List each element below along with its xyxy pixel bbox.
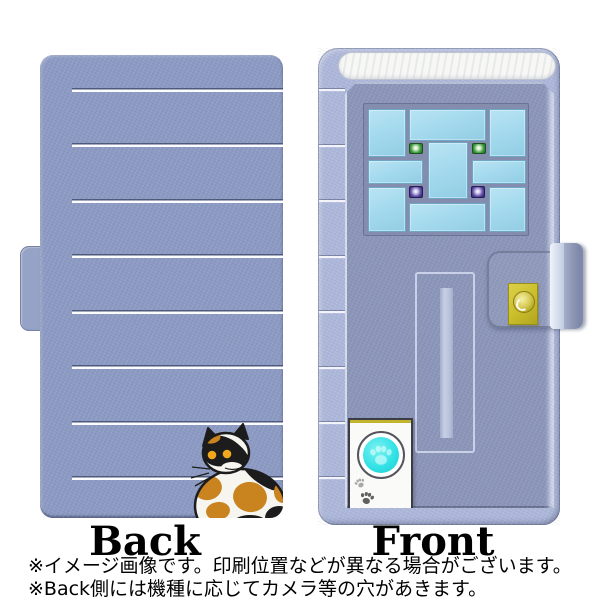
snap-glint [515, 297, 530, 312]
purple-lamp-icon [409, 186, 423, 198]
transom-window [338, 52, 556, 80]
green-lamp-icon [409, 143, 423, 154]
window-pane [489, 109, 526, 157]
front-case [318, 48, 560, 525]
doorbell-box [348, 418, 413, 510]
spine-ridge [319, 88, 345, 92]
spine-ridge [319, 255, 345, 259]
snap-button-icon [513, 291, 535, 313]
calico-cat-illustration [188, 423, 283, 518]
window-grid [363, 103, 529, 236]
paw-button [363, 437, 399, 473]
window-pane [409, 203, 486, 232]
clasp-strap-highlight [550, 243, 564, 329]
window-pane [368, 109, 406, 157]
window-pane-center [428, 142, 468, 199]
clasp-strap [550, 243, 583, 329]
back-stripe [72, 88, 283, 92]
doorbell-ring [357, 431, 405, 479]
footer-note-1: ※イメージ画像です。印刷位置などが異なる場合がございます。 [28, 555, 572, 578]
back-cover [40, 55, 283, 518]
spine-ridge [319, 476, 345, 480]
back-stripe [72, 199, 283, 203]
mail-slot [440, 288, 453, 438]
spine-ridge [319, 199, 345, 203]
back-stripe [72, 254, 283, 258]
paw-print-icon [368, 442, 394, 468]
window-pane [409, 109, 486, 141]
green-lamp-icon [472, 143, 486, 154]
spine-ridge [319, 310, 345, 314]
window-pane [472, 160, 526, 184]
transom-texture [339, 53, 555, 79]
window-pane [489, 187, 526, 232]
window-pane [368, 187, 406, 232]
doorbell-gold-strip [350, 420, 411, 423]
cat-eye [223, 450, 232, 459]
window-pane [368, 160, 423, 184]
snap-plate [508, 283, 538, 325]
back-stripe [72, 310, 283, 314]
clasp-strap-edge [564, 243, 583, 329]
footer-note-2: ※Back側には機種に応じてカメラ等の穴があきます。 [28, 578, 487, 600]
back-stripe [72, 143, 283, 147]
purple-lamp-icon [471, 186, 485, 198]
back-stripe [72, 365, 283, 369]
spine-ridge [319, 421, 345, 425]
product-image: Back Front ※イメージ画像です。印刷位置などが異なる場合がございます。… [0, 0, 600, 600]
spine-ridge [319, 144, 345, 148]
spine-ridge [319, 366, 345, 370]
paw-print-icon [357, 488, 376, 507]
cat-eye [208, 451, 217, 460]
